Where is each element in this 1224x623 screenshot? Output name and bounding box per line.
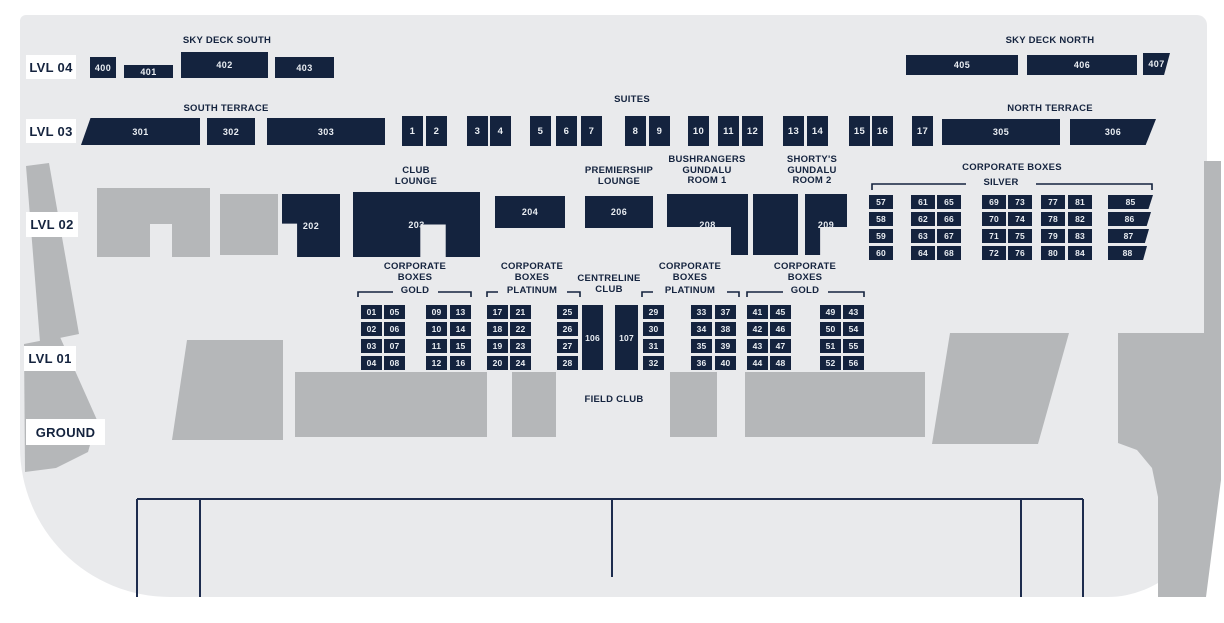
section-406[interactable]: 406: [1027, 55, 1137, 75]
corporate-box-35[interactable]: 35: [691, 339, 712, 353]
header-line: SKY DECK SOUTH: [183, 36, 271, 47]
corporate-box-26[interactable]: 26: [557, 322, 578, 336]
corporate-box-43[interactable]: 43: [843, 305, 864, 319]
centreline-club-header: CENTRELINECLUB: [577, 274, 640, 295]
corporate-box-55[interactable]: 55: [843, 339, 864, 353]
corporate-box-39[interactable]: 39: [715, 339, 736, 353]
corporate-box-01[interactable]: 01: [361, 305, 382, 319]
header-line: FIELD CLUB: [585, 395, 644, 406]
corporate-box-83[interactable]: 83: [1068, 229, 1092, 243]
header-line: BOXES: [501, 273, 563, 284]
south-terrace-header: SOUTH TERRACE: [183, 104, 268, 115]
corporate-box-10[interactable]: 10: [426, 322, 447, 336]
corporate-box-68[interactable]: 68: [937, 246, 961, 260]
suite-6[interactable]: 6: [556, 116, 577, 146]
corporate-box-29[interactable]: 29: [643, 305, 664, 319]
suite-10[interactable]: 10: [688, 116, 709, 146]
section-203[interactable]: 203: [353, 192, 480, 257]
corporate-box-58[interactable]: 58: [869, 212, 893, 226]
corporate-box-78[interactable]: 78: [1041, 212, 1065, 226]
level-label-lvl-04: LVL 04: [26, 55, 76, 79]
header-line: LOUNGE: [395, 177, 437, 188]
corporate-box-04[interactable]: 04: [361, 356, 382, 370]
corporate-box-54[interactable]: 54: [843, 322, 864, 336]
header-line: BUSHRANGERS: [668, 155, 745, 166]
suite-3[interactable]: 3: [467, 116, 488, 146]
corporate-box-02[interactable]: 02: [361, 322, 382, 336]
suite-16[interactable]: 16: [872, 116, 893, 146]
corporate-box-28[interactable]: 28: [557, 356, 578, 370]
corporate-box-22[interactable]: 22: [510, 322, 531, 336]
corporate-box-76[interactable]: 76: [1008, 246, 1032, 260]
header-line: SHORTY'S: [787, 155, 837, 166]
stand-shape: [97, 188, 210, 257]
corporate-box-48[interactable]: 48: [770, 356, 791, 370]
suite-9[interactable]: 9: [649, 116, 670, 146]
corporate-box-32[interactable]: 32: [643, 356, 664, 370]
level-label-lvl-02: LVL 02: [26, 212, 78, 237]
header-line: BOXES: [384, 273, 446, 284]
suite-13[interactable]: 13: [783, 116, 804, 146]
platinum-left-label: PLATINUM: [507, 286, 557, 297]
corporate-box-03[interactable]: 03: [361, 339, 382, 353]
section-401[interactable]: 401: [124, 65, 173, 78]
sky-deck-south-header: SKY DECK SOUTH: [183, 36, 271, 47]
sky-deck-north-header: SKY DECK NORTH: [1006, 36, 1095, 47]
corporate-box-38[interactable]: 38: [715, 322, 736, 336]
corporate-box-43[interactable]: 43: [747, 339, 768, 353]
corporate-box-47[interactable]: 47: [770, 339, 791, 353]
suites-header: SUITES: [614, 95, 650, 106]
corporate-box-50[interactable]: 50: [820, 322, 841, 336]
corporate-box-21[interactable]: 21: [510, 305, 531, 319]
north-terrace-header: NORTH TERRACE: [1007, 104, 1093, 115]
corporate-box-12[interactable]: 12: [426, 356, 447, 370]
corporate-box-30[interactable]: 30: [643, 322, 664, 336]
corporate-box-70[interactable]: 70: [982, 212, 1006, 226]
header-line: LOUNGE: [585, 177, 653, 188]
header-line: CLUB: [577, 285, 640, 296]
corporate-box-66[interactable]: 66: [937, 212, 961, 226]
corporate-boxes-gold-right-header: CORPORATEBOXES: [774, 262, 836, 283]
stand-shape: [1118, 333, 1221, 597]
header-line: GOLD: [791, 286, 819, 297]
corporate-box-23[interactable]: 23: [510, 339, 531, 353]
section-302[interactable]: 302: [207, 118, 255, 145]
stand-shape: [172, 340, 283, 440]
suite-5[interactable]: 5: [530, 116, 551, 146]
suite-14[interactable]: 14: [807, 116, 828, 146]
corporate-boxes-gold-left-header: CORPORATEBOXES: [384, 262, 446, 283]
section-204[interactable]: 204: [495, 196, 565, 228]
corporate-box-80[interactable]: 80: [1041, 246, 1065, 260]
corporate-box-63[interactable]: 63: [911, 229, 935, 243]
header-line: SILVER: [983, 178, 1018, 189]
stadium-level-map: 4004014024034054064073013023033053062022…: [0, 0, 1224, 623]
corporate-box-65[interactable]: 65: [937, 195, 961, 209]
corporate-box-73[interactable]: 73: [1008, 195, 1032, 209]
corporate-box-52[interactable]: 52: [820, 356, 841, 370]
corporate-box-19[interactable]: 19: [487, 339, 508, 353]
corporate-box-11[interactable]: 11: [426, 339, 447, 353]
corporate-box-16[interactable]: 16: [450, 356, 471, 370]
corporate-box-85[interactable]: 85: [1108, 195, 1153, 209]
corporate-box-07[interactable]: 07: [384, 339, 405, 353]
suite-11[interactable]: 11: [718, 116, 739, 146]
suite-7[interactable]: 7: [581, 116, 602, 146]
corporate-box-08[interactable]: 08: [384, 356, 405, 370]
corporate-box-20[interactable]: 20: [487, 356, 508, 370]
corporate-boxes-platinum-left-header: CORPORATEBOXES: [501, 262, 563, 283]
header-line: CLUB: [395, 166, 437, 177]
header-line: CORPORATE: [774, 262, 836, 273]
level-label-lvl-03: LVL 03: [26, 119, 76, 143]
corporate-box-87[interactable]: 87: [1108, 229, 1149, 243]
silver-label: SILVER: [983, 178, 1018, 189]
gold-left-label: GOLD: [401, 286, 429, 297]
corporate-box-42[interactable]: 42: [747, 322, 768, 336]
corporate-box-41[interactable]: 41: [747, 305, 768, 319]
corporate-box-34[interactable]: 34: [691, 322, 712, 336]
header-line: BOXES: [774, 273, 836, 284]
corporate-box-88[interactable]: 88: [1108, 246, 1147, 260]
corporate-box-67[interactable]: 67: [937, 229, 961, 243]
corporate-box-59[interactable]: 59: [869, 229, 893, 243]
header-line: ROOM 1: [668, 176, 745, 187]
section-301[interactable]: 301: [81, 118, 200, 145]
header-line: PLATINUM: [507, 286, 557, 297]
header-line: CORPORATE: [384, 262, 446, 273]
corporate-box-40[interactable]: 40: [715, 356, 736, 370]
suite-8[interactable]: 8: [625, 116, 646, 146]
corporate-box-86[interactable]: 86: [1108, 212, 1151, 226]
corporate-box-46[interactable]: 46: [770, 322, 791, 336]
corporate-box-27[interactable]: 27: [557, 339, 578, 353]
suite-4[interactable]: 4: [490, 116, 511, 146]
corporate-box-64[interactable]: 64: [911, 246, 935, 260]
stand-shape: [220, 194, 278, 255]
corporate-box-69[interactable]: 69: [982, 195, 1006, 209]
suite-1[interactable]: 1: [402, 116, 423, 146]
section-107[interactable]: 107: [615, 305, 638, 370]
platinum-right-label: PLATINUM: [665, 286, 715, 297]
corporate-box-77[interactable]: 77: [1041, 195, 1065, 209]
header-line: NORTH TERRACE: [1007, 104, 1093, 115]
bushrangers-gundalu-room-1-header: BUSHRANGERSGUNDALUROOM 1: [668, 155, 745, 187]
stand-shape: [26, 163, 79, 342]
section-unlabeled[interactable]: [753, 194, 798, 255]
corporate-box-56[interactable]: 56: [843, 356, 864, 370]
corporate-box-44[interactable]: 44: [747, 356, 768, 370]
corporate-box-72[interactable]: 72: [982, 246, 1006, 260]
header-line: CENTRELINE: [577, 274, 640, 285]
corporate-box-36[interactable]: 36: [691, 356, 712, 370]
section-305[interactable]: 305: [942, 119, 1060, 145]
header-line: PREMIERSHIP: [585, 166, 653, 177]
suite-17[interactable]: 17: [912, 116, 933, 146]
stand-shape: [1204, 161, 1221, 338]
corporate-box-62[interactable]: 62: [911, 212, 935, 226]
stand-shape: [670, 372, 717, 437]
corporate-box-13[interactable]: 13: [450, 305, 471, 319]
header-line: SUITES: [614, 95, 650, 106]
section-206[interactable]: 206: [585, 196, 653, 228]
header-line: SOUTH TERRACE: [183, 104, 268, 115]
suite-2[interactable]: 2: [426, 116, 447, 146]
corporate-box-60[interactable]: 60: [869, 246, 893, 260]
field-outline: [137, 499, 1083, 597]
section-106[interactable]: 106: [582, 305, 603, 370]
corporate-box-14[interactable]: 14: [450, 322, 471, 336]
section-403[interactable]: 403: [275, 57, 334, 78]
section-306[interactable]: 306: [1070, 119, 1156, 145]
corporate-box-05[interactable]: 05: [384, 305, 405, 319]
stand-shape: [932, 333, 1069, 444]
header-line: GOLD: [401, 286, 429, 297]
corporate-box-18[interactable]: 18: [487, 322, 508, 336]
corporate-box-49[interactable]: 49: [820, 305, 841, 319]
corporate-box-61[interactable]: 61: [911, 195, 935, 209]
corporate-box-82[interactable]: 82: [1068, 212, 1092, 226]
corporate-box-51[interactable]: 51: [820, 339, 841, 353]
corporate-boxes-platinum-right-header: CORPORATEBOXES: [659, 262, 721, 283]
field-club-label: FIELD CLUB: [585, 395, 644, 406]
corporate-box-71[interactable]: 71: [982, 229, 1006, 243]
stand-shape: [295, 372, 487, 437]
corporate-box-75[interactable]: 75: [1008, 229, 1032, 243]
header-line: CORPORATE: [501, 262, 563, 273]
suite-15[interactable]: 15: [849, 116, 870, 146]
corporate-boxes-silver-header: CORPORATE BOXES: [962, 163, 1062, 174]
header-line: CORPORATE: [659, 262, 721, 273]
section-303[interactable]: 303: [267, 118, 385, 145]
corporate-box-37[interactable]: 37: [715, 305, 736, 319]
corporate-box-31[interactable]: 31: [643, 339, 664, 353]
corporate-box-17[interactable]: 17: [487, 305, 508, 319]
stand-shape: [745, 372, 925, 437]
corporate-box-24[interactable]: 24: [510, 356, 531, 370]
section-400[interactable]: 400: [90, 57, 116, 78]
level-label-lvl-01: LVL 01: [24, 346, 76, 371]
section-405[interactable]: 405: [906, 55, 1018, 75]
corporate-box-15[interactable]: 15: [450, 339, 471, 353]
premiership-lounge-header: PREMIERSHIPLOUNGE: [585, 166, 653, 187]
club-lounge-header: CLUBLOUNGE: [395, 166, 437, 187]
corporate-box-06[interactable]: 06: [384, 322, 405, 336]
gold-right-label: GOLD: [791, 286, 819, 297]
map-shapes-layer: [0, 0, 1224, 623]
corporate-box-81[interactable]: 81: [1068, 195, 1092, 209]
stand-shape: [512, 372, 556, 437]
header-line: ROOM 2: [787, 176, 837, 187]
corporate-box-74[interactable]: 74: [1008, 212, 1032, 226]
corporate-box-79[interactable]: 79: [1041, 229, 1065, 243]
suite-12[interactable]: 12: [742, 116, 763, 146]
corporate-box-45[interactable]: 45: [770, 305, 791, 319]
header-line: CORPORATE BOXES: [962, 163, 1062, 174]
header-line: BOXES: [659, 273, 721, 284]
shortys-gundalu-room-2-header: SHORTY'SGUNDALUROOM 2: [787, 155, 837, 187]
header-line: SKY DECK NORTH: [1006, 36, 1095, 47]
section-402[interactable]: 402: [181, 52, 268, 78]
corporate-box-84[interactable]: 84: [1068, 246, 1092, 260]
header-line: PLATINUM: [665, 286, 715, 297]
corporate-box-09[interactable]: 09: [426, 305, 447, 319]
corporate-box-57[interactable]: 57: [869, 195, 893, 209]
level-label-ground: GROUND: [26, 419, 105, 445]
corporate-box-25[interactable]: 25: [557, 305, 578, 319]
corporate-box-33[interactable]: 33: [691, 305, 712, 319]
